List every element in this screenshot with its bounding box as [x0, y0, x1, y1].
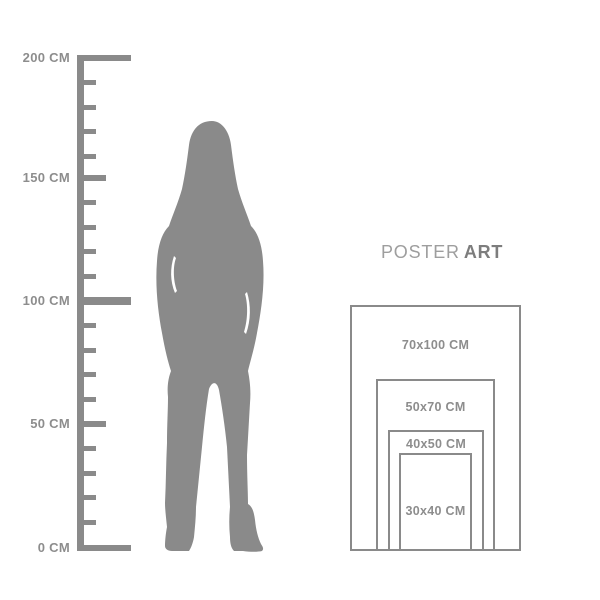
ruler-minor-tick — [77, 495, 96, 500]
ruler-minor-tick — [77, 225, 96, 230]
size-label-70x100: 70x100 CM — [350, 338, 521, 352]
ruler-minor-tick — [77, 520, 96, 525]
woman-silhouette — [156, 121, 263, 552]
ruler-label-0cm: 0 CM — [0, 540, 70, 556]
ruler-minor-tick — [77, 154, 96, 159]
ruler-label-50cm: 50 CM — [0, 416, 70, 432]
ruler-minor-tick — [77, 372, 96, 377]
ruler-minor-tick — [77, 323, 96, 328]
ruler-label-100cm: 100 CM — [0, 293, 70, 309]
ruler-minor-tick — [77, 397, 96, 402]
size-label-30x40: 30x40 CM — [399, 504, 472, 518]
ruler-label-200cm: 200 CM — [0, 50, 70, 66]
ruler-minor-tick — [77, 446, 96, 451]
ruler-minor-tick — [77, 200, 96, 205]
woman-silhouette-body — [156, 121, 263, 552]
brand-word-art: ART — [464, 242, 503, 262]
ruler-tick-50 — [77, 421, 106, 427]
ruler-tick-150 — [77, 175, 106, 181]
ruler-minor-tick — [77, 105, 96, 110]
size-label-40x50: 40x50 CM — [388, 437, 484, 451]
ruler-tick-0 — [77, 545, 131, 551]
ruler-tick-200 — [77, 55, 131, 61]
poster-size-guide: 200 CM 150 CM 100 CM 50 CM 0 CM POSTERAR… — [0, 0, 600, 600]
size-label-50x70: 50x70 CM — [376, 400, 495, 414]
ruler-minor-tick — [77, 249, 96, 254]
ruler-label-150cm: 150 CM — [0, 170, 70, 186]
ruler-minor-tick — [77, 471, 96, 476]
ruler — [77, 55, 131, 551]
ruler-minor-tick — [77, 80, 96, 85]
brand-word-poster: POSTER — [381, 242, 460, 262]
ruler-minor-tick — [77, 348, 96, 353]
brand-title: POSTERART — [381, 242, 503, 263]
ruler-tick-100 — [77, 297, 131, 305]
ruler-minor-tick — [77, 274, 96, 279]
size-rect-30x40 — [399, 453, 472, 551]
ruler-minor-tick — [77, 129, 96, 134]
